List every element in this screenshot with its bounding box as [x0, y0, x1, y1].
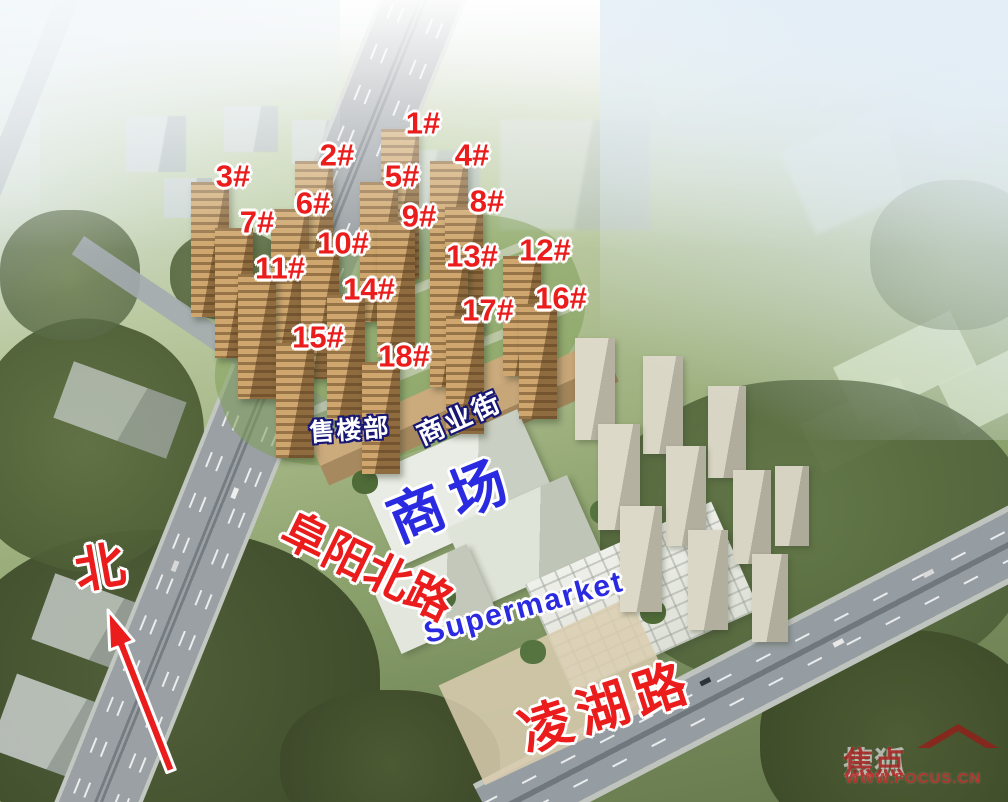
building-number-label: 12# [519, 235, 571, 266]
watermark-url: WWW.FOCUS.CN [845, 770, 981, 787]
building-number-label: 6# [296, 188, 330, 219]
building-number-label: 3# [216, 161, 250, 192]
aerial-masterplan-image: 1#2#3#4#5#6#7#8#9#10#11#12#13#14#15#16#1… [0, 0, 1008, 802]
building-number-label: 10# [317, 228, 369, 259]
building-number-label: 11# [255, 253, 305, 284]
north-label: 北 [71, 539, 129, 597]
residential-tower [238, 274, 276, 399]
watermark-brand: 搜狐焦点 [843, 738, 1007, 772]
building-number-label: 8# [470, 186, 504, 217]
north-arrow-icon [88, 593, 198, 793]
building-number-label: 15# [292, 322, 344, 353]
building-number-label: 13# [446, 241, 498, 272]
building-number-label: 14# [343, 274, 395, 305]
building-number-label: 2# [320, 140, 354, 171]
sales-office-label: 售楼部 [309, 416, 392, 447]
residential-tower [327, 295, 365, 420]
residential-tower [519, 304, 557, 419]
building-number-label: 18# [378, 341, 430, 372]
residential-tower [276, 343, 314, 458]
building-number-label: 17# [462, 295, 514, 326]
building-number-label: 7# [240, 207, 274, 238]
building-number-label: 4# [455, 140, 489, 171]
building-number-label: 5# [385, 161, 419, 192]
building-number-label: 1# [406, 108, 440, 139]
watermark: 搜狐焦点 WWW.FOCUS.CN [843, 724, 1007, 796]
building-number-label: 9# [402, 201, 436, 232]
building-number-label: 16# [535, 283, 587, 314]
